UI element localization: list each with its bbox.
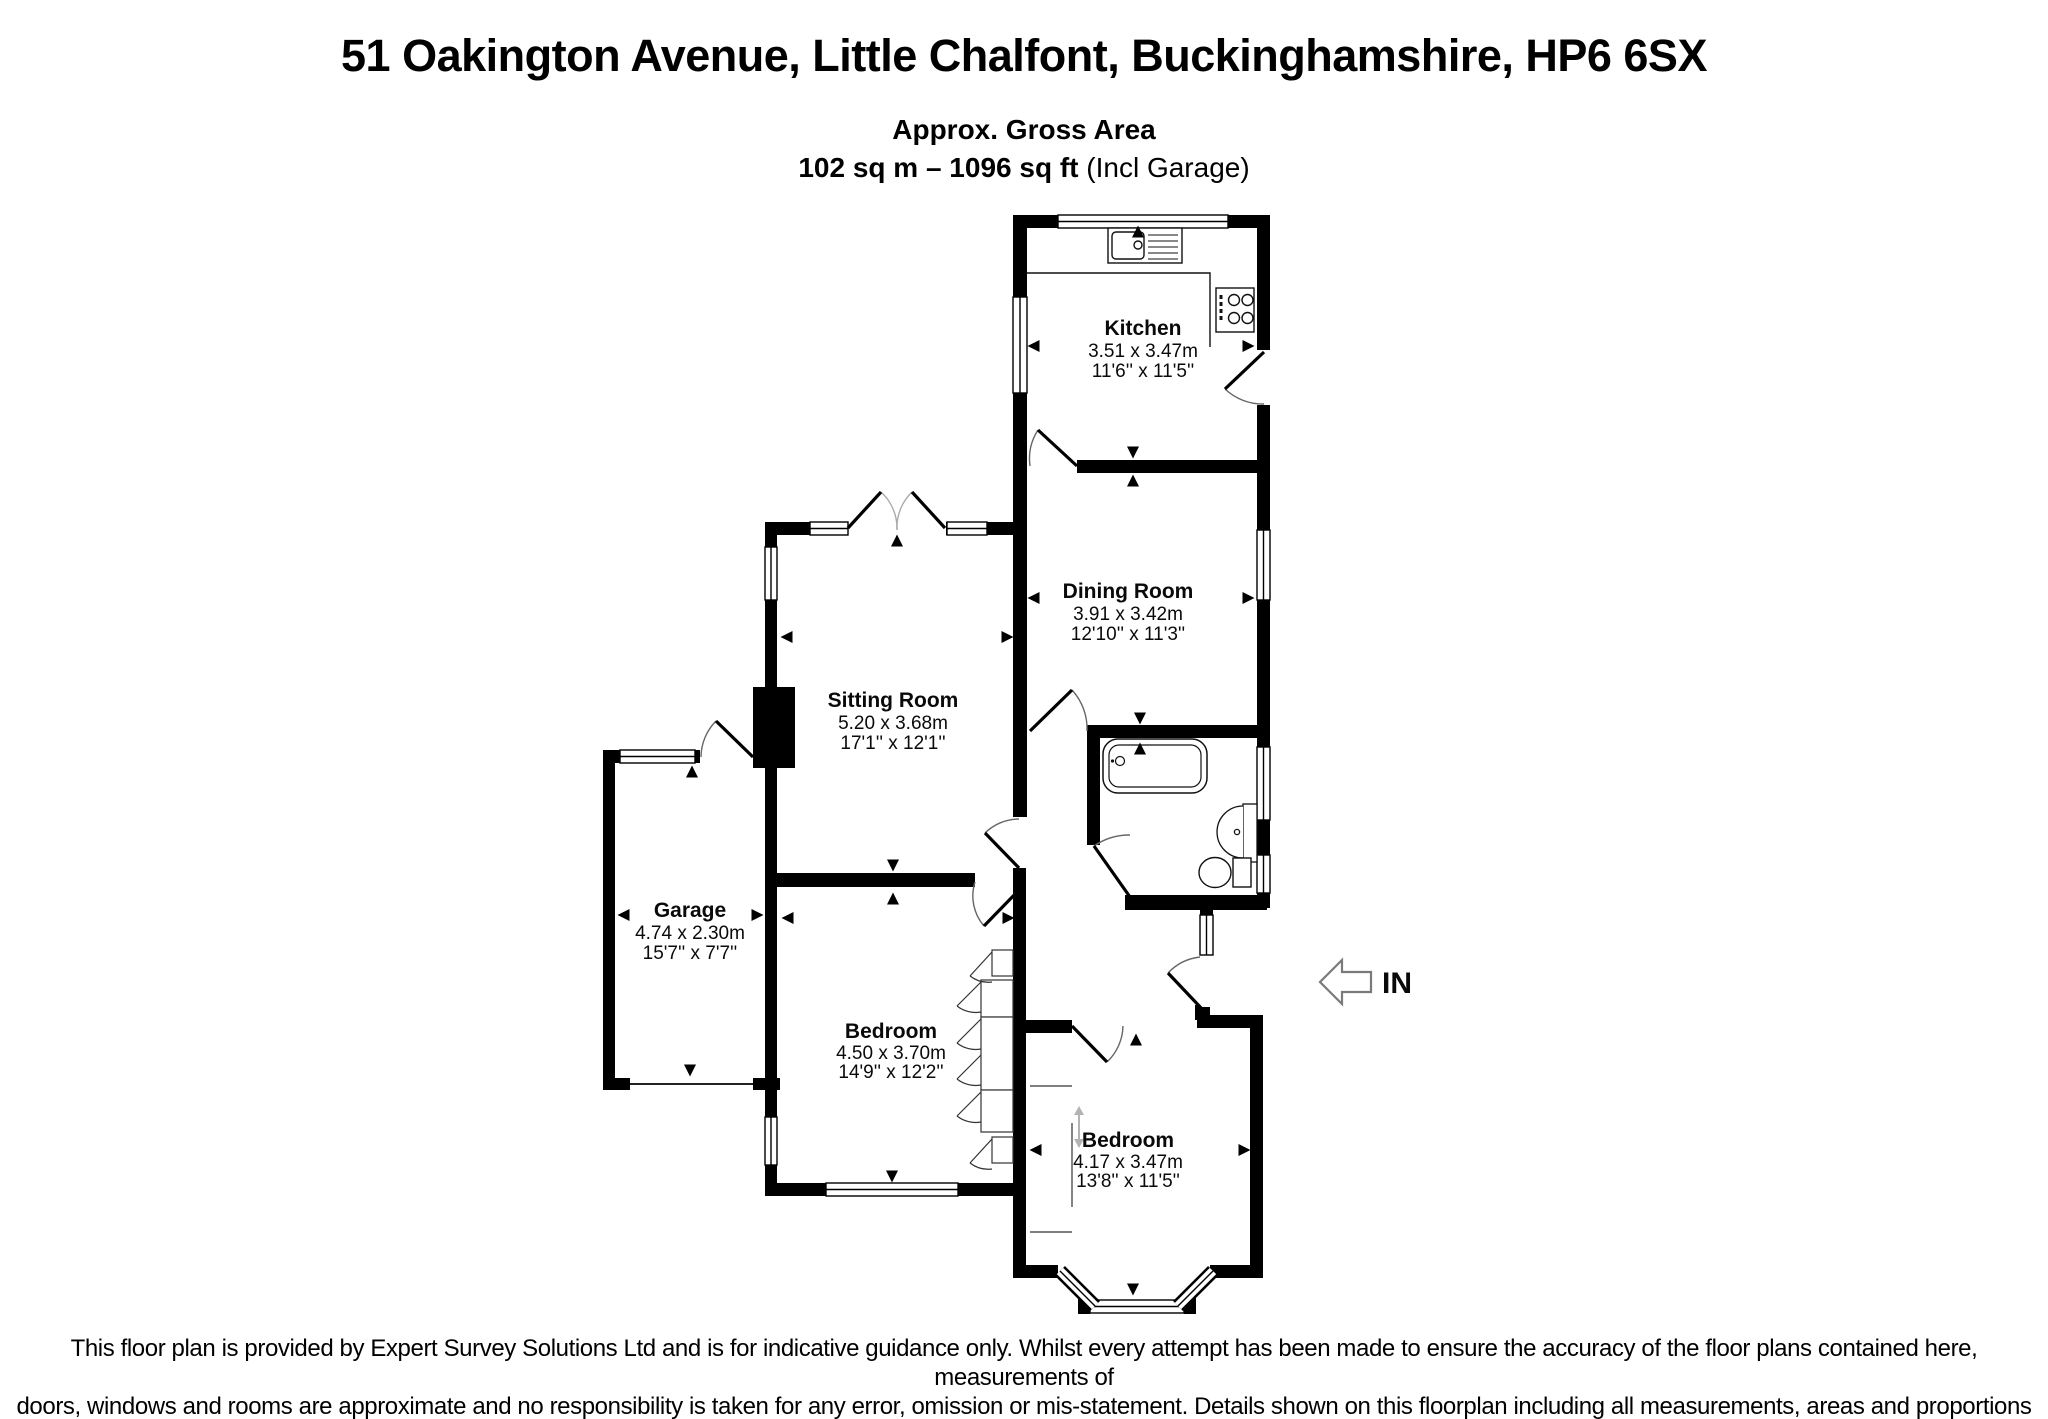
room-label-kitchen: Kitchen 3.51 x 3.47m 11'6'' x 11'5'' [1088,317,1198,382]
svg-text:4.74 x 2.30m: 4.74 x 2.30m [635,923,745,944]
bedroom1-cupboards [957,950,1013,1169]
svg-text:Sitting Room: Sitting Room [828,689,959,712]
svg-text:Garage: Garage [654,899,726,922]
basin [1217,804,1257,862]
toilet [1199,858,1251,888]
svg-text:12'10'' x 11'3'': 12'10'' x 11'3'' [1071,624,1185,645]
svg-text:14'9'' x 12'2'': 14'9'' x 12'2'' [838,1062,943,1083]
room-label-dining: Dining Room 3.91 x 3.42m 12'10'' x 11'3'… [1063,580,1194,645]
disclaimer: This floor plan is provided by Expert Su… [0,1334,2048,1419]
floorplan-drawing: Kitchen 3.51 x 3.47m 11'6'' x 11'5'' Din… [0,0,2048,1419]
disclaimer-line-2: doors, windows and rooms are approximate… [0,1392,2048,1419]
svg-text:Kitchen: Kitchen [1104,317,1181,340]
svg-text:3.91 x 3.42m: 3.91 x 3.42m [1073,604,1183,625]
svg-text:15'7'' x 7'7'': 15'7'' x 7'7'' [643,943,738,964]
room-label-garage: Garage 4.74 x 2.30m 15'7'' x 7'7'' [635,899,745,964]
room-label-bedroom2: Bedroom 4.17 x 3.47m 13'8'' x 11'5'' [1073,1129,1183,1192]
svg-text:Bedroom: Bedroom [1082,1129,1174,1152]
entrance-arrow-icon [1320,960,1371,1004]
svg-text:17'1'' x 12'1'': 17'1'' x 12'1'' [840,733,945,754]
kitchen-sink [1108,228,1182,263]
disclaimer-line-1: This floor plan is provided by Expert Su… [0,1334,2048,1392]
svg-text:11'6'' x 11'5'': 11'6'' x 11'5'' [1092,361,1194,382]
svg-text:Dining Room: Dining Room [1063,580,1194,603]
svg-text:3.51 x 3.47m: 3.51 x 3.47m [1088,341,1198,362]
entrance-marker: IN [1320,960,1412,1004]
svg-text:4.50 x 3.70m: 4.50 x 3.70m [836,1043,946,1064]
bay-window [1060,1271,1213,1314]
bathtub [1103,739,1207,793]
bathroom-fixtures [1103,739,1257,888]
svg-text:5.20 x 3.68m: 5.20 x 3.68m [838,713,948,734]
entrance-label: IN [1382,967,1412,1000]
svg-text:13'8'' x 11'5'': 13'8'' x 11'5'' [1076,1171,1180,1192]
room-label-sitting: Sitting Room 5.20 x 3.68m 17'1'' x 12'1'… [828,689,959,754]
svg-text:Bedroom: Bedroom [845,1020,937,1043]
svg-text:4.17 x 3.47m: 4.17 x 3.47m [1073,1152,1183,1173]
floorplan-page: 51 Oakington Avenue, Little Chalfont, Bu… [0,0,2048,1419]
room-label-bedroom1: Bedroom 4.50 x 3.70m 14'9'' x 12'2'' [836,1020,946,1083]
door-leaves [716,352,1264,1062]
hob [1216,288,1254,332]
